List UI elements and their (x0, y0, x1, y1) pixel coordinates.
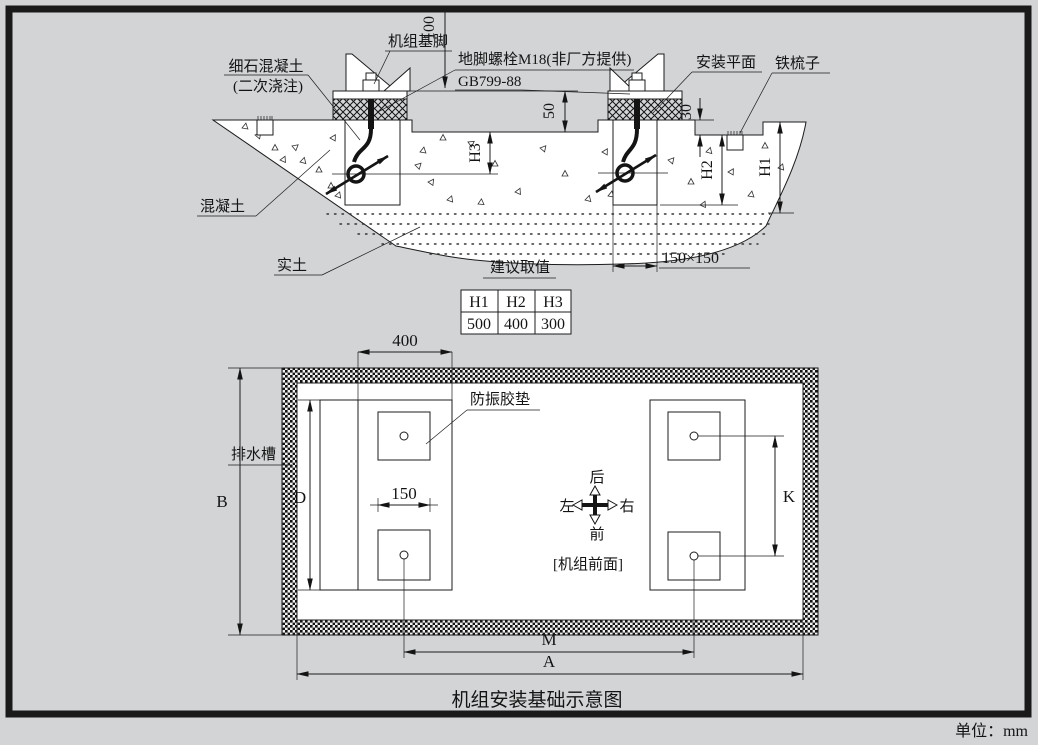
dim-A-label: A (543, 652, 556, 671)
fine-concrete-text2: (二次浇注) (233, 78, 303, 95)
plan-view: 400 B D 150 K (216, 331, 818, 680)
concrete-text: 混凝土 (200, 198, 245, 215)
label-machine-foot: 机组基脚 (374, 33, 452, 84)
machine-foot-fin-left-inner (384, 68, 410, 91)
compass-front-label: 前 (589, 526, 604, 543)
anchor-bolt-shank-right (634, 99, 640, 129)
anchor-nut-right (629, 80, 645, 91)
foundation-inner-area (297, 383, 803, 620)
dim-150-label: 150 (391, 484, 417, 503)
iron-comb-text: 铁梳子 (775, 55, 820, 72)
table-value-h1: 500 (467, 316, 491, 333)
table-title: 建议取值 (490, 259, 550, 276)
dim-M-label: M (541, 630, 556, 649)
vibration-pad-section-right (608, 99, 682, 120)
anchor-bolt-tip-left (366, 73, 376, 80)
dim-pocket-label: 150×150 (662, 250, 719, 267)
unit-front-label: [机组前面] (553, 556, 623, 573)
dim-H2-label: H2 (699, 160, 716, 180)
unit-note: 单位：mm (955, 722, 1028, 740)
vibration-pad-text: 防振胶垫 (470, 391, 530, 408)
anchor-bolt-shank-left (368, 99, 374, 129)
table-header-h3: H3 (543, 294, 563, 311)
dim-H1-label: H1 (757, 157, 774, 177)
dim-K-label: K (783, 487, 796, 506)
compass-left-label: 左 (559, 498, 574, 515)
dim-50-label: 50 (541, 103, 558, 119)
dimension-B: B (216, 368, 284, 635)
suggested-values-table: 建议取值 H1 H2 H3 500 400 300 (461, 259, 571, 334)
drain-channel-text: 排水槽 (231, 446, 276, 463)
compass-right-label: 右 (619, 498, 634, 515)
drawing-canvas: 100 50 30 H3 H2 H1 (0, 0, 1038, 745)
compass-back-label: 后 (589, 469, 604, 486)
iron-comb-right (727, 131, 743, 150)
mounting-plane-text: 安装平面 (696, 54, 756, 71)
vibration-pad-top-left (378, 412, 430, 460)
dim-400-label: 400 (392, 331, 418, 350)
anchor-bolt-text: 地脚螺栓M18(非厂方提供) (458, 51, 631, 68)
machine-foot-text: 机组基脚 (388, 33, 448, 50)
table-header-h1: H1 (469, 294, 489, 311)
dimension-50: 50 (407, 91, 578, 132)
pad-plate-right (608, 91, 682, 99)
dim-30-label: 30 (678, 104, 695, 120)
bolt-standard-text: GB799-88 (458, 74, 521, 90)
label-anchor-bolt: 地脚螺栓M18(非厂方提供) GB799-88 (378, 51, 634, 112)
pad-plate-left (333, 91, 407, 99)
table-value-h2: 400 (504, 316, 528, 333)
dim-B-label: B (216, 492, 227, 511)
anchor-bolt-tip-right (632, 73, 642, 80)
dim-H3-label: H3 (467, 143, 484, 163)
table-header-h2: H2 (506, 294, 526, 311)
solid-soil-text: 实土 (277, 257, 307, 274)
section-view: 100 50 30 H3 H2 H1 (197, 10, 830, 275)
fine-concrete-text: 细石混凝土 (228, 58, 303, 75)
concrete-body (213, 120, 806, 265)
table-value-h3: 300 (541, 316, 565, 333)
iron-comb-left (257, 116, 273, 135)
dim-D-label: D (294, 488, 306, 507)
anchor-nut-left (363, 80, 379, 91)
drawing-caption: 机组安装基础示意图 (451, 689, 622, 711)
